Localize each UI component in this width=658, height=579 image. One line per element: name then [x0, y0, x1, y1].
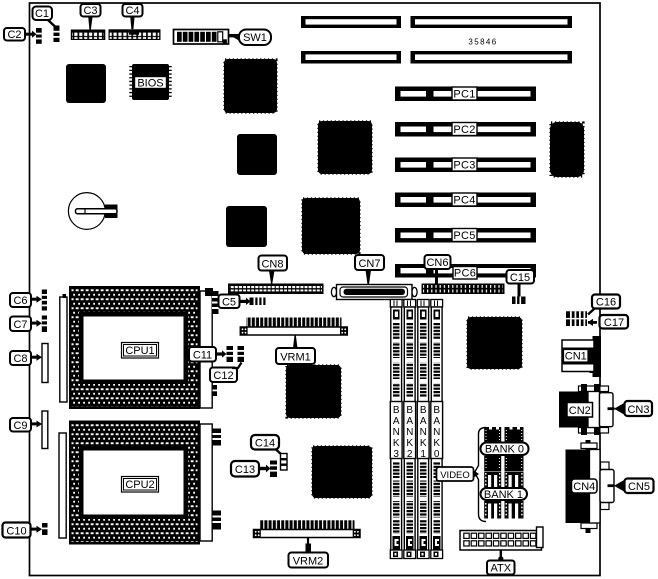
svg-text:C14: C14: [255, 437, 275, 449]
svg-text:N: N: [433, 427, 440, 438]
svg-text:CN3: CN3: [627, 404, 649, 416]
svg-text:C17: C17: [604, 317, 624, 329]
svg-text:C1: C1: [35, 8, 49, 20]
svg-text:PC3: PC3: [453, 159, 475, 171]
svg-text:CN2: CN2: [569, 405, 591, 417]
svg-text:C8: C8: [13, 353, 27, 365]
svg-text:A: A: [393, 416, 400, 427]
svg-text:SW1: SW1: [243, 32, 267, 44]
svg-text:BIOS: BIOS: [137, 77, 163, 89]
svg-text:CPU2: CPU2: [125, 479, 154, 491]
svg-text:C5: C5: [222, 296, 236, 308]
svg-text:A: A: [433, 416, 440, 427]
svg-text:K: K: [433, 438, 440, 449]
svg-text:N: N: [420, 427, 427, 438]
svg-text:CN7: CN7: [358, 258, 380, 270]
svg-text:C6: C6: [13, 295, 27, 307]
svg-text:PC2: PC2: [453, 124, 475, 136]
svg-text:PC4: PC4: [453, 194, 475, 206]
svg-text:C16: C16: [596, 297, 616, 309]
svg-text:PC6: PC6: [454, 268, 476, 280]
svg-text:C3: C3: [83, 5, 97, 17]
svg-text:CN4: CN4: [573, 481, 595, 493]
svg-text:C4: C4: [125, 5, 139, 17]
svg-text:C15: C15: [510, 272, 530, 284]
svg-text:A: A: [420, 416, 427, 427]
svg-text:C2: C2: [7, 29, 21, 41]
svg-text:VRM1: VRM1: [280, 352, 311, 364]
svg-text:BANK 1: BANK 1: [484, 489, 523, 501]
svg-text:K: K: [420, 438, 427, 449]
svg-text:2: 2: [407, 449, 413, 460]
svg-text:CPU1: CPU1: [125, 345, 154, 357]
svg-text:0: 0: [434, 449, 440, 460]
svg-text:B: B: [393, 405, 400, 416]
svg-text:BANK 0: BANK 0: [485, 444, 524, 456]
svg-text:PC1: PC1: [453, 88, 475, 100]
svg-text:VIDEO: VIDEO: [440, 470, 470, 481]
svg-text:C10: C10: [6, 525, 26, 537]
svg-text:N: N: [393, 427, 400, 438]
svg-text:K: K: [393, 438, 400, 449]
svg-text:B: B: [433, 405, 440, 416]
svg-text:C12: C12: [213, 370, 233, 382]
svg-text:1: 1: [420, 449, 426, 460]
svg-text:B: B: [406, 405, 413, 416]
svg-text:C9: C9: [13, 420, 27, 432]
svg-text:PC5: PC5: [453, 230, 475, 242]
svg-text:CN1: CN1: [565, 351, 587, 363]
svg-text:CN6: CN6: [426, 257, 448, 269]
svg-text:C7: C7: [13, 319, 27, 331]
svg-text:A: A: [406, 416, 413, 427]
svg-text:ATX: ATX: [491, 563, 512, 575]
svg-text:K: K: [406, 438, 413, 449]
svg-text:N: N: [406, 427, 413, 438]
svg-text:B: B: [420, 405, 427, 416]
svg-text:3: 3: [393, 449, 399, 460]
svg-text:CN5: CN5: [628, 481, 650, 493]
svg-text:C11: C11: [193, 349, 212, 361]
svg-text:35846: 35846: [468, 38, 497, 47]
svg-text:VRM2: VRM2: [293, 556, 324, 568]
svg-text:CN8: CN8: [261, 258, 283, 270]
svg-text:C13: C13: [235, 464, 255, 476]
